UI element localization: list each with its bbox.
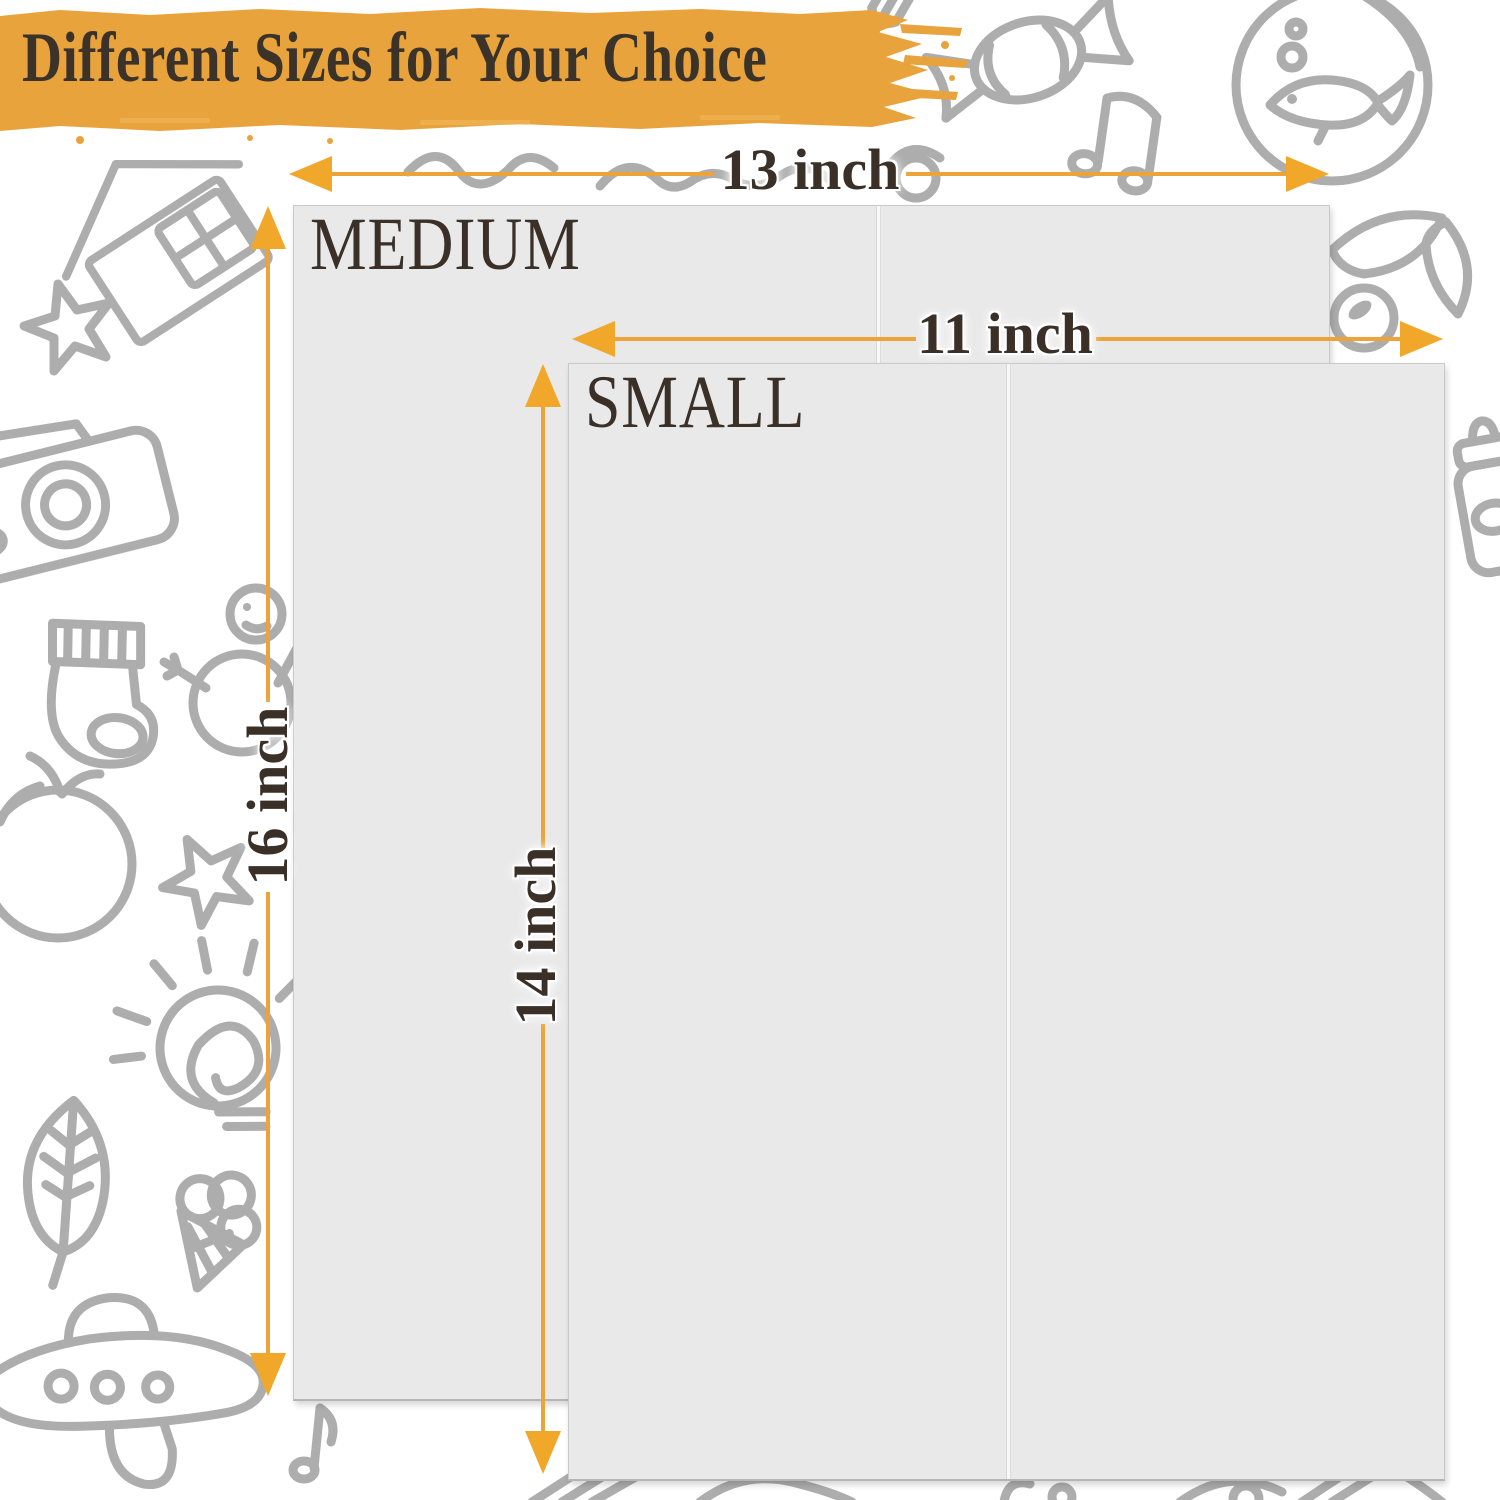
small-width-label: 11 inch	[917, 305, 1093, 363]
small-height-label: 14 inch	[507, 847, 565, 1026]
dimension-arrows	[0, 0, 1500, 1500]
medium-height-label: 16 inch	[239, 707, 297, 886]
page-title: Different Sizes for Your Choice	[22, 18, 767, 99]
product-size-infographic: MEDIUM SMALL 13 inch 11 inch 16 in	[0, 0, 1500, 1500]
